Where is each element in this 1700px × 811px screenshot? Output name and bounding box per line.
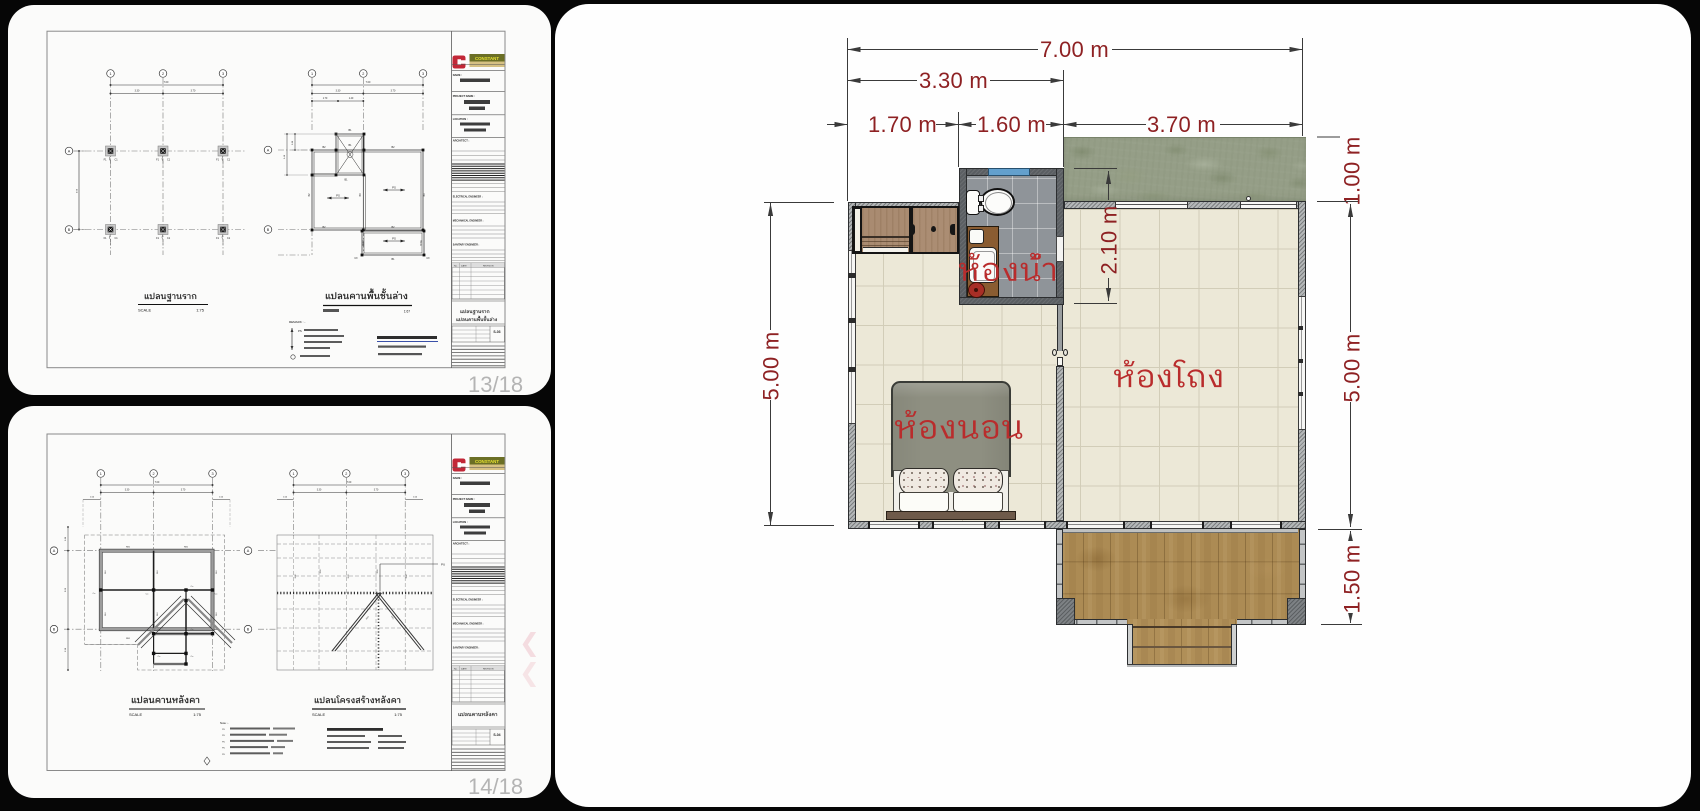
- svg-text:F1: F1: [156, 159, 160, 162]
- svg-text:C1: C1: [227, 237, 231, 240]
- svg-text:SCALE: SCALE: [312, 712, 325, 717]
- svg-text:3: 3: [422, 72, 424, 76]
- svg-text:B2: B2: [322, 146, 326, 149]
- svg-text:ARCHITECT :: ARCHITECT :: [453, 139, 470, 143]
- svg-text:PS: PS: [392, 186, 396, 190]
- svg-text:RB1: RB1: [184, 547, 189, 549]
- svg-text:B3: B3: [423, 193, 426, 197]
- svg-text:1.40: 1.40: [284, 154, 286, 159]
- svg-text:SANITARY ENGINEER :: SANITARY ENGINEER :: [453, 244, 480, 247]
- svg-text:3: 3: [222, 72, 224, 76]
- svg-text:1:75: 1:75: [193, 712, 202, 717]
- svg-text:3.70: 3.70: [391, 90, 396, 93]
- svg-text:RB1: RB1: [366, 615, 370, 620]
- svg-text:PU: PU: [441, 563, 445, 567]
- svg-text:B.5A: B.5A: [420, 240, 423, 246]
- svg-text:B.5A: B.5A: [362, 240, 365, 246]
- svg-text:CX: CX: [426, 257, 430, 260]
- svg-text:S-04: S-04: [493, 733, 500, 737]
- svg-text:Cx: Cx: [191, 656, 195, 658]
- svg-text:PS: PS: [336, 194, 340, 198]
- svg-text:CONSTANT: CONSTANT: [475, 56, 499, 61]
- svg-text:LOCATION :: LOCATION :: [453, 117, 468, 121]
- svg-text:RW1: RW1: [406, 573, 408, 578]
- svg-text:1: 1: [100, 472, 102, 476]
- svg-text:RW1: RW1: [320, 568, 322, 573]
- svg-text:RB1: RB1: [216, 611, 218, 616]
- svg-text:RB1: RB1: [157, 569, 159, 574]
- svg-text:1:75: 1:75: [196, 308, 205, 313]
- svg-text:PS: PS: [298, 329, 302, 333]
- svg-text:B: B: [247, 628, 250, 632]
- svg-text:1.00: 1.00: [90, 497, 95, 499]
- svg-text:B1: B1: [348, 129, 352, 132]
- svg-text:7.00: 7.00: [366, 81, 371, 84]
- svg-text:1.00: 1.00: [413, 497, 418, 499]
- svg-text:SANITARY ENGINEER :: SANITARY ENGINEER :: [453, 647, 480, 650]
- svg-text:1: 1: [311, 72, 313, 76]
- svg-text:1:67: 1:67: [404, 310, 410, 314]
- svg-text:CONSTANT: CONSTANT: [475, 459, 499, 464]
- svg-text:PROJECT NAME :: PROJECT NAME :: [453, 497, 475, 501]
- svg-text:2: 2: [162, 72, 164, 76]
- svg-text:B3: B3: [359, 193, 362, 197]
- svg-text:Cx: Cx: [93, 593, 97, 595]
- svg-text:RB1: RB1: [126, 547, 131, 549]
- svg-text:B2: B2: [322, 226, 326, 229]
- svg-text:B: B: [53, 628, 56, 632]
- svg-text:RW1: RW1: [348, 573, 350, 578]
- svg-text:5.00: 5.00: [77, 188, 79, 193]
- svg-text:7.00: 7.00: [155, 482, 160, 484]
- svg-text:A: A: [267, 148, 270, 152]
- svg-text:Note :-: Note :-: [220, 721, 228, 725]
- svg-text:DATE: DATE: [461, 265, 467, 268]
- svg-text:ELECTRICAL ENGINEER :: ELECTRICAL ENGINEER :: [453, 599, 483, 602]
- svg-text:C1: C1: [115, 237, 119, 240]
- svg-text:SCALE: SCALE: [138, 308, 151, 313]
- svg-text:2: 2: [362, 72, 364, 76]
- svg-text:B2: B2: [308, 193, 311, 197]
- svg-text:C1: C1: [227, 159, 231, 162]
- svg-text:3.30: 3.30: [317, 490, 322, 492]
- svg-text:ELECTRICAL ENGINEER :: ELECTRICAL ENGINEER :: [453, 196, 483, 199]
- svg-text:LOCATION :: LOCATION :: [453, 520, 468, 524]
- svg-text:1: 1: [109, 72, 111, 76]
- svg-text:B: B: [267, 228, 270, 232]
- svg-text:1.50: 1.50: [65, 647, 67, 652]
- svg-text:3.70: 3.70: [181, 490, 186, 492]
- svg-text:2: 2: [153, 472, 155, 476]
- svg-text:Cx: Cx: [191, 586, 195, 588]
- svg-text:CX: CX: [354, 257, 358, 260]
- svg-text:7.00: 7.00: [164, 81, 169, 84]
- svg-text:A: A: [53, 549, 56, 553]
- svg-text:F1: F1: [104, 237, 108, 240]
- svg-text:DATE: DATE: [461, 668, 467, 671]
- svg-text:3.30: 3.30: [135, 90, 140, 93]
- svg-text:S-03: S-03: [493, 330, 500, 334]
- svg-text:C1: C1: [167, 237, 171, 240]
- svg-text:F1: F1: [216, 237, 220, 240]
- svg-text:PU: PU: [222, 754, 225, 756]
- svg-text:1.00: 1.00: [65, 536, 67, 541]
- svg-text:PU: PU: [222, 729, 225, 731]
- svg-text:F1: F1: [216, 159, 220, 162]
- svg-text:C1: C1: [115, 159, 119, 162]
- svg-text:Cx: Cx: [146, 594, 150, 596]
- svg-text:PS: PS: [392, 237, 396, 241]
- svg-text:1:75: 1:75: [394, 712, 403, 717]
- svg-text:RB1: RB1: [157, 611, 159, 616]
- svg-text:3.30: 3.30: [125, 490, 130, 492]
- svg-text:F1: F1: [156, 237, 160, 240]
- svg-text:3.70: 3.70: [374, 490, 379, 492]
- svg-text:7.00: 7.00: [347, 482, 352, 484]
- svg-text:RB1: RB1: [105, 569, 107, 574]
- svg-text:1.00: 1.00: [219, 497, 224, 499]
- svg-text:B2: B2: [391, 146, 395, 149]
- svg-text:RW1: RW1: [295, 573, 297, 578]
- svg-text:RB1: RB1: [126, 638, 131, 640]
- svg-text:RB1: RB1: [105, 611, 107, 616]
- svg-text:3: 3: [211, 472, 213, 476]
- svg-text:No.: No.: [454, 669, 458, 671]
- svg-text:NAME :: NAME :: [453, 476, 462, 480]
- svg-text:MECHANICAL ENGINEER :: MECHANICAL ENGINEER :: [453, 623, 484, 626]
- svg-text:5.00: 5.00: [65, 587, 67, 592]
- svg-text:B2: B2: [391, 226, 395, 229]
- svg-text:RB1: RB1: [216, 569, 218, 574]
- svg-text:B1: B1: [391, 258, 395, 261]
- svg-text:Cx: Cx: [215, 594, 219, 596]
- svg-text:1.00: 1.00: [292, 140, 294, 145]
- svg-text:F1: F1: [104, 159, 108, 162]
- svg-text:3.70: 3.70: [191, 90, 196, 93]
- svg-text:1.40: 1.40: [349, 98, 354, 100]
- svg-text:1: 1: [292, 472, 294, 476]
- svg-text:1.70: 1.70: [323, 98, 328, 100]
- svg-text:B1: B1: [344, 179, 348, 182]
- svg-text:B: B: [68, 228, 71, 232]
- svg-text:MECHANICAL ENGINEER :: MECHANICAL ENGINEER :: [453, 220, 484, 223]
- svg-text:REVISION: REVISION: [483, 266, 494, 268]
- svg-text:PU: PU: [222, 735, 225, 737]
- svg-text:A: A: [247, 549, 250, 553]
- svg-text:1.00: 1.00: [283, 497, 288, 499]
- svg-text:3.30: 3.30: [336, 90, 341, 93]
- svg-text:PU: PU: [222, 748, 225, 750]
- svg-text:SCALE: SCALE: [129, 712, 142, 717]
- svg-text:A: A: [68, 149, 71, 153]
- svg-text:C1: C1: [167, 159, 171, 162]
- svg-text:2: 2: [345, 472, 347, 476]
- svg-text:RW1: RW1: [377, 568, 379, 573]
- svg-text:NAME :: NAME :: [453, 73, 462, 77]
- svg-text:B1: B1: [348, 144, 352, 147]
- svg-text:ARCHITECT :: ARCHITECT :: [453, 542, 470, 546]
- svg-text:Cx: Cx: [158, 656, 162, 658]
- svg-text:3: 3: [404, 472, 406, 476]
- svg-text:PU: PU: [222, 741, 225, 743]
- svg-text:REMARK : -: REMARK : -: [289, 320, 305, 324]
- svg-text:PROJECT NAME :: PROJECT NAME :: [453, 94, 475, 98]
- svg-text:No.: No.: [454, 266, 458, 268]
- svg-text:REVISION: REVISION: [483, 669, 494, 671]
